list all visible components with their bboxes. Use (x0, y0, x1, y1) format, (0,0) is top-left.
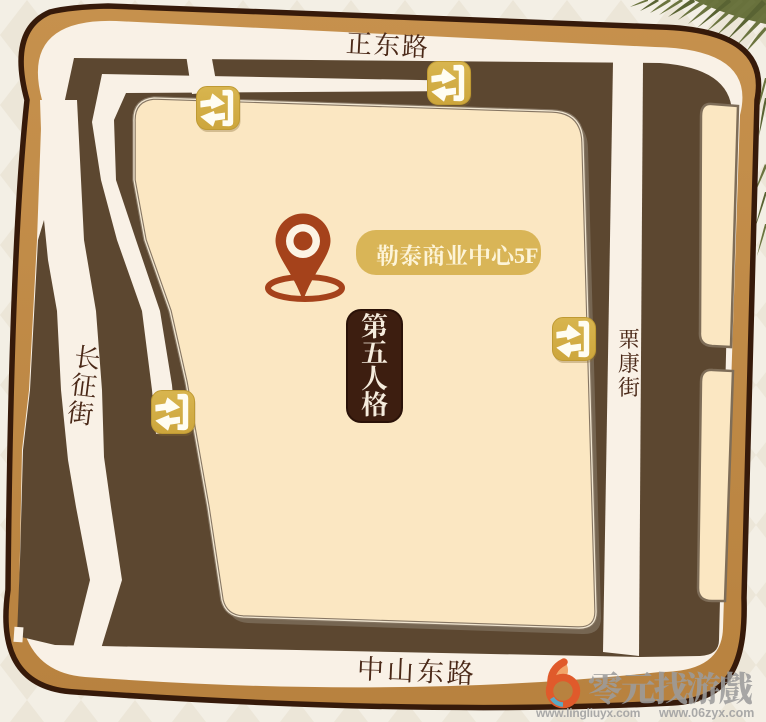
svg-text:www.06zyx.com: www.06zyx.com (658, 706, 754, 720)
svg-text:5F: 5F (514, 243, 538, 268)
svg-text:www.lingliuyx.com: www.lingliuyx.com (535, 706, 640, 720)
